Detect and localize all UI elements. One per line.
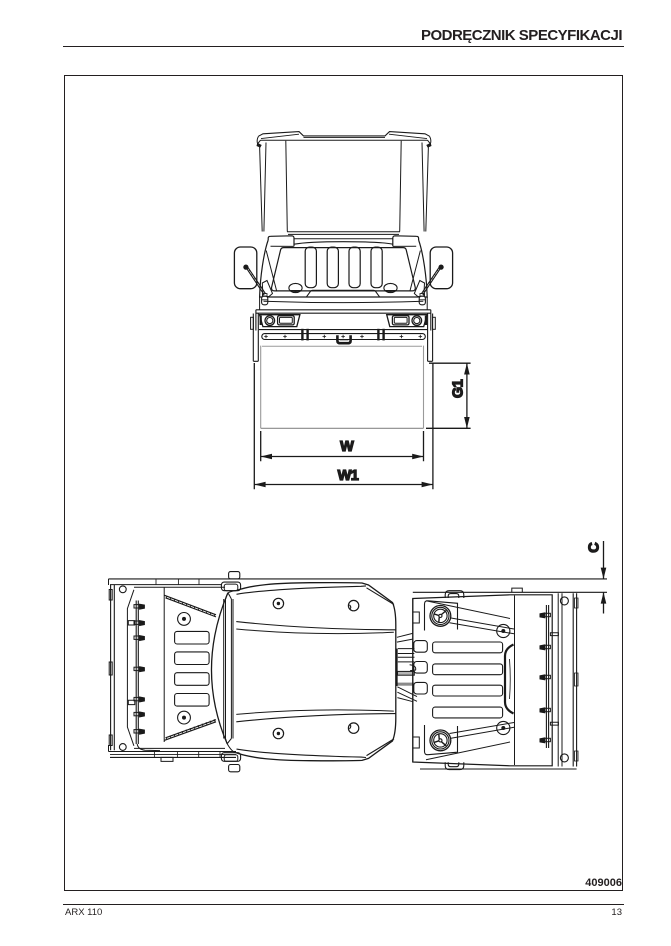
svg-text:G1: G1 xyxy=(450,379,466,398)
svg-text:C: C xyxy=(587,542,603,553)
svg-text:W: W xyxy=(340,439,354,455)
svg-text:W1: W1 xyxy=(338,468,359,484)
